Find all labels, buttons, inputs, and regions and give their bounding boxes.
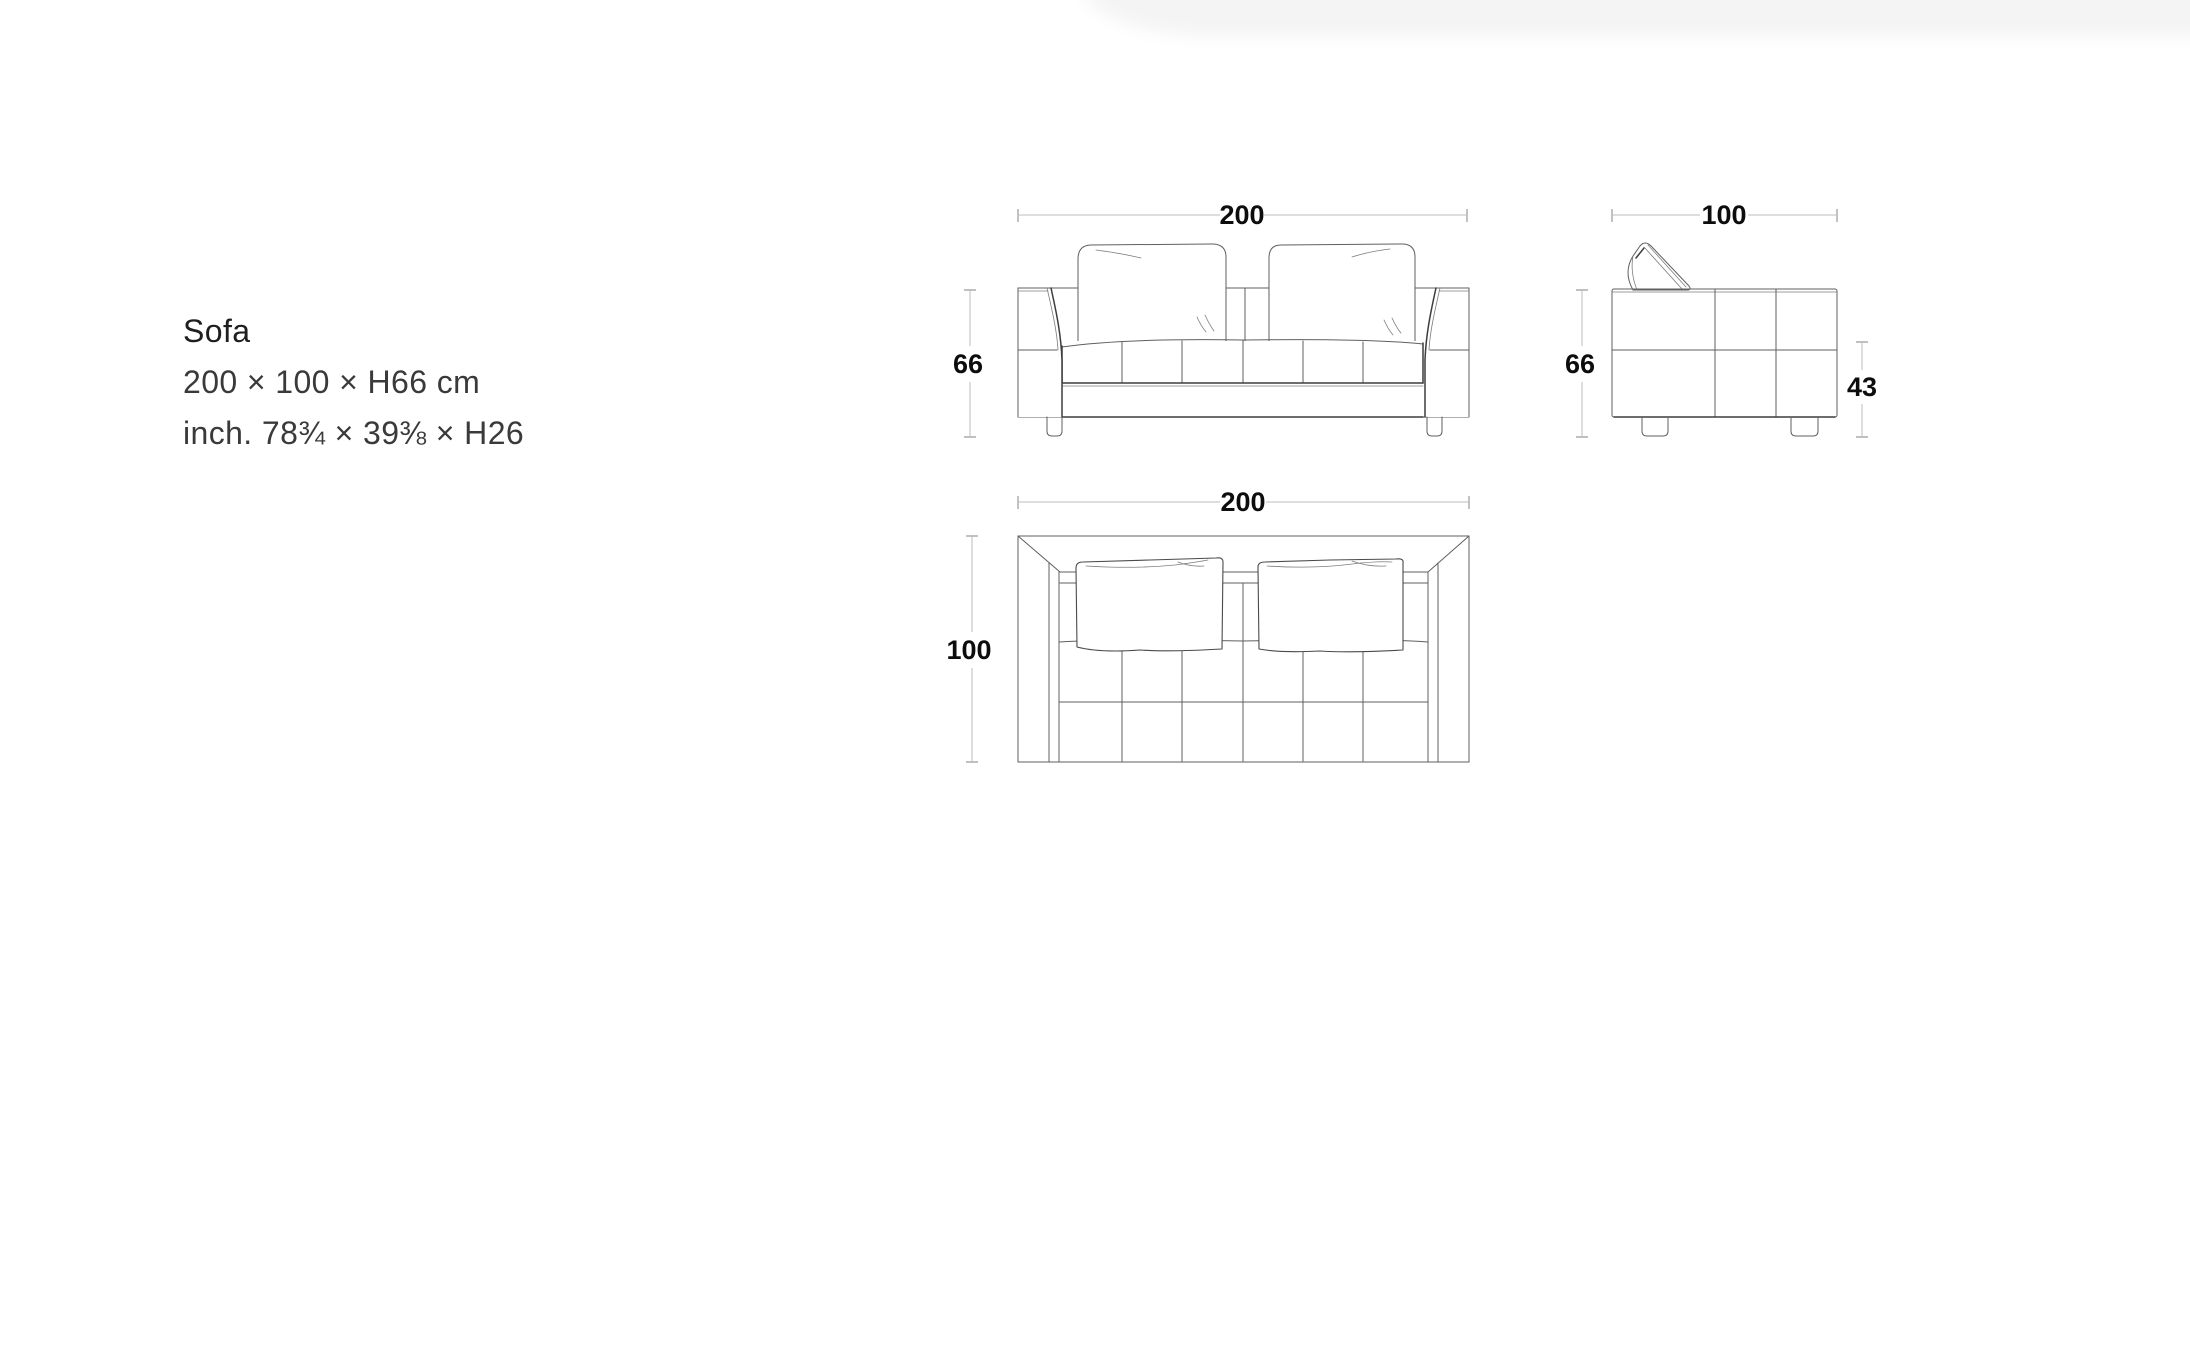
top-back-cushion-right: [1258, 559, 1403, 652]
side-depth-dimension: 100: [1612, 200, 1837, 230]
product-dimensions-inch: inch. 78¾ × 39⅜ × H26: [183, 408, 524, 459]
product-dimensions-cm: 200 × 100 × H66 cm: [183, 357, 524, 408]
top-depth-dimension: 100: [946, 536, 991, 762]
top-view-drawing: 200 100: [930, 480, 1530, 780]
front-height-dimension: 66: [953, 290, 983, 437]
side-depth-label: 100: [1701, 200, 1746, 230]
side-view-svg: 100 66 43: [1550, 190, 1890, 460]
product-info: Sofa 200 × 100 × H66 cm inch. 78¾ × 39⅜ …: [183, 306, 524, 459]
front-width-label: 200: [1219, 200, 1264, 230]
side-height-label: 66: [1565, 349, 1595, 379]
front-view-art: [1018, 244, 1469, 436]
front-width-dimension: 200: [1018, 200, 1467, 230]
side-seat-height-label: 43: [1847, 372, 1877, 402]
product-name: Sofa: [183, 306, 524, 357]
top-view-art: [1018, 536, 1469, 762]
side-height-dimension: 66: [1565, 290, 1595, 437]
top-depth-label: 100: [946, 635, 991, 665]
top-seat-grid: [1059, 640, 1428, 761]
front-armrest-right: [1425, 288, 1469, 417]
side-legs: [1642, 417, 1818, 436]
top-width-label: 200: [1220, 487, 1265, 517]
side-view-drawing: 100 66 43: [1550, 190, 1890, 460]
top-view-svg: 200 100: [930, 480, 1530, 780]
side-seat-height-dimension: 43: [1847, 342, 1877, 437]
front-view-svg: 200 66: [930, 190, 1530, 460]
front-back-cushion-left: [1078, 244, 1226, 344]
top-width-dimension: 200: [1018, 487, 1469, 517]
front-height-label: 66: [953, 349, 983, 379]
front-seat-cushions: [1062, 340, 1423, 386]
side-back-cushion: [1628, 243, 1690, 290]
front-legs: [1047, 417, 1442, 436]
front-armrest-left: [1018, 288, 1062, 417]
top-back-cushion-left: [1076, 558, 1223, 651]
top-right-card-shade: [1082, 0, 2190, 36]
front-view-drawing: 200 66: [930, 190, 1530, 460]
side-view-art: [1612, 243, 1837, 436]
front-back-cushion-right: [1269, 244, 1415, 344]
